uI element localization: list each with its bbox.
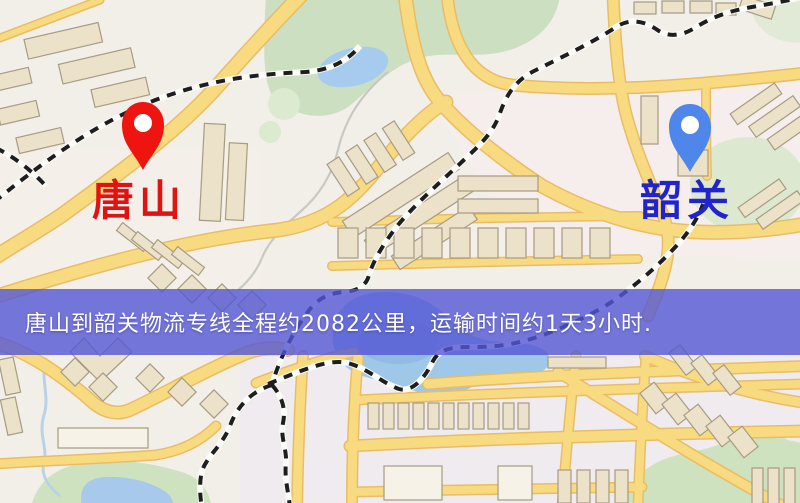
map-image (0, 0, 800, 503)
red-location-pin-icon (115, 98, 171, 172)
blue-location-pin-icon (662, 100, 718, 174)
destination-city-label: 韶关 (640, 180, 734, 222)
route-info-text: 唐山到韶关物流专线全程约2082公里，运输时间约1天3小时. (25, 306, 652, 338)
destination-pin (662, 100, 718, 174)
origin-city-label: 唐山 (92, 180, 186, 222)
map-screenshot: 唐山到韶关物流专线全程约2082公里，运输时间约1天3小时. 唐山 韶关 (0, 0, 800, 503)
origin-pin (115, 98, 171, 172)
route-info-banner: 唐山到韶关物流专线全程约2082公里，运输时间约1天3小时. (0, 289, 800, 355)
